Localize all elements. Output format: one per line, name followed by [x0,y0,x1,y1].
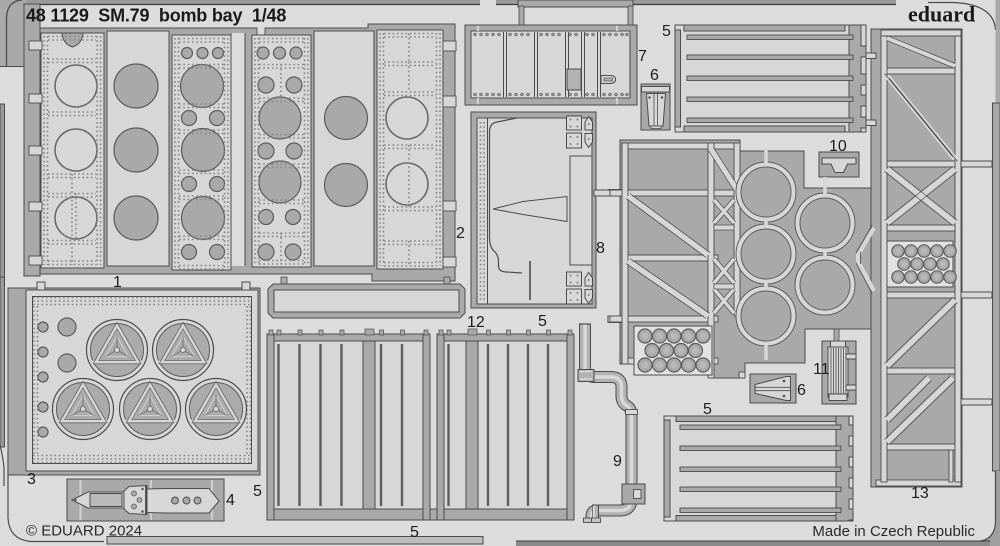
svg-text:eduard: eduard [908,2,975,27]
svg-text:8: 8 [596,240,605,257]
svg-text:5: 5 [662,23,671,40]
svg-text:© EDUARD 2024: © EDUARD 2024 [26,523,142,540]
svg-text:2: 2 [456,225,465,242]
svg-text:11: 11 [813,361,830,378]
svg-text:7: 7 [638,48,647,65]
svg-text:9: 9 [613,453,622,470]
svg-text:10: 10 [829,138,847,155]
svg-text:4: 4 [226,492,235,509]
svg-text:5: 5 [703,401,712,418]
svg-text:6: 6 [650,67,659,84]
svg-text:48 1129 SM.79 bomb bay 1/48: 48 1129 SM.79 bomb bay 1/48 [26,6,286,26]
svg-text:6: 6 [797,382,806,399]
svg-text:3: 3 [27,471,36,488]
svg-text:5: 5 [410,524,419,541]
svg-text:5: 5 [253,483,262,500]
svg-text:5: 5 [538,313,547,330]
svg-text:13: 13 [911,485,929,502]
svg-text:12: 12 [467,314,485,331]
svg-text:1: 1 [113,274,122,291]
svg-text:Made in Czech Republic: Made in Czech Republic [812,523,975,540]
